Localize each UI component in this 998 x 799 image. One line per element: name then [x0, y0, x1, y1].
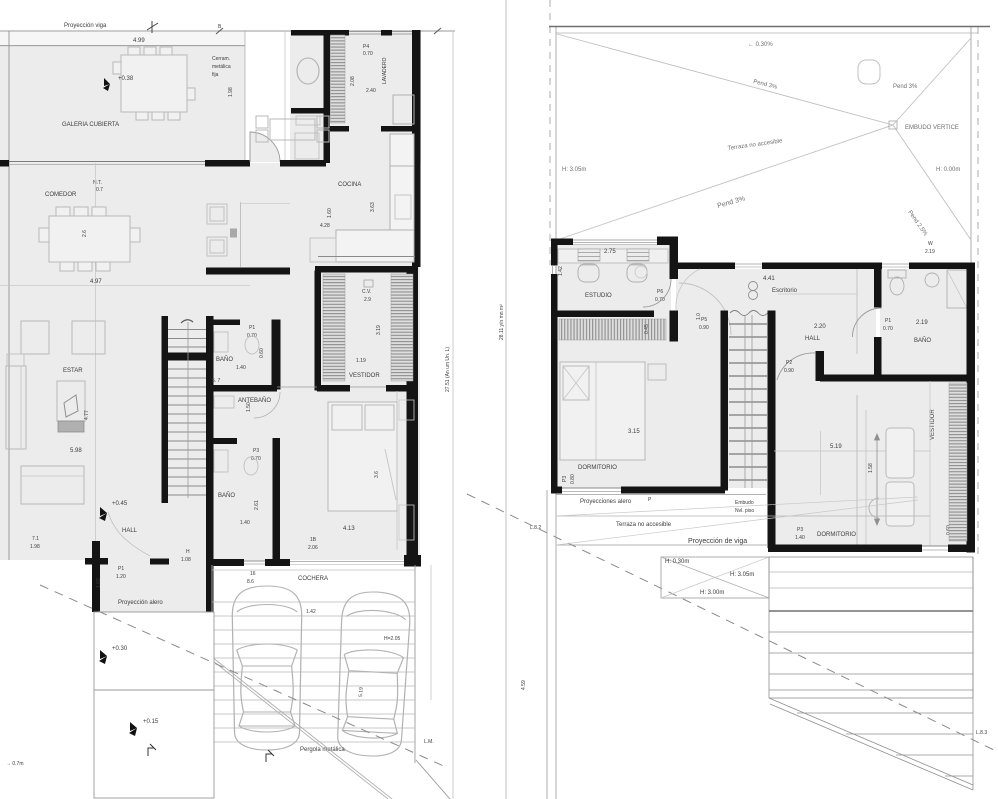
svg-text:1.19: 1.19	[356, 358, 366, 364]
svg-text:7.1: 7.1	[32, 536, 39, 542]
svg-text:4.77: 4.77	[84, 410, 90, 420]
svg-text:W: W	[928, 241, 933, 247]
svg-text:BAÑO: BAÑO	[218, 492, 235, 499]
svg-text:Escritorio: Escritorio	[772, 288, 798, 294]
svg-text:fija: fija	[212, 72, 219, 78]
svg-text:4.97: 4.97	[90, 279, 102, 285]
svg-text:1.98: 1.98	[30, 544, 40, 550]
svg-text:2.40: 2.40	[366, 88, 376, 94]
svg-text:HALL: HALL	[805, 336, 821, 342]
svg-text:+0.38: +0.38	[118, 76, 134, 82]
svg-text:1B: 1B	[310, 537, 317, 543]
svg-text:3.15: 3.15	[628, 429, 640, 435]
svg-text:1.02: 1.02	[96, 578, 102, 588]
svg-text:4.41: 4.41	[763, 276, 775, 282]
svg-text:Terraza no accesible: Terraza no accesible	[616, 522, 672, 528]
svg-text:H: 3.05m: H: 3.05m	[730, 572, 754, 578]
svg-text:H: H	[186, 549, 190, 555]
svg-text:0.80: 0.80	[570, 474, 576, 484]
svg-text:H: 0.00m: H: 0.00m	[936, 167, 960, 173]
svg-text:P1: P1	[249, 325, 255, 331]
svg-text:P3: P3	[797, 527, 803, 533]
svg-text:LAVADERO: LAVADERO	[382, 57, 388, 84]
svg-text:4.28: 4.28	[320, 223, 330, 229]
svg-text:ESTAR: ESTAR	[63, 368, 83, 374]
svg-text:COCINA: COCINA	[338, 182, 361, 188]
svg-text:C.V.: C.V.	[362, 289, 371, 295]
svg-text:Nvl. piso: Nvl. piso	[735, 508, 754, 514]
svg-text:P3: P3	[253, 448, 259, 454]
svg-text:Proyección de viga: Proyección de viga	[688, 538, 747, 545]
svg-text:P3: P3	[562, 476, 568, 482]
svg-text:0.7: 0.7	[96, 187, 103, 193]
svg-text:ANTEBAÑO: ANTEBAÑO	[238, 397, 271, 404]
svg-text:P1: P1	[118, 566, 124, 572]
svg-text:P4: P4	[363, 44, 369, 50]
svg-text:1.60: 1.60	[327, 208, 333, 218]
svg-text:N.T.: N.T.	[93, 180, 102, 186]
svg-text:3.63: 3.63	[370, 202, 376, 212]
svg-text:0.70: 0.70	[363, 51, 373, 57]
svg-text:+0.30: +0.30	[112, 646, 128, 652]
svg-text:0.90: 0.90	[784, 368, 794, 374]
svg-text:1.08: 1.08	[181, 557, 191, 563]
svg-text:+0.15: +0.15	[143, 719, 159, 725]
svg-text:3.6: 3.6	[374, 471, 380, 478]
svg-text:16: 16	[250, 571, 256, 577]
svg-text:2.06: 2.06	[308, 545, 318, 551]
svg-text:1.50: 1.50	[246, 402, 252, 412]
svg-text:ESTUDIO: ESTUDIO	[585, 293, 612, 299]
svg-text:H=2.05: H=2.05	[384, 636, 400, 642]
svg-text:8.6: 8.6	[247, 579, 254, 585]
svg-text:2.19: 2.19	[925, 249, 935, 255]
svg-text:Cerram.: Cerram.	[212, 56, 230, 62]
svg-text:5.98: 5.98	[70, 448, 82, 454]
svg-text:4.99: 4.99	[133, 38, 145, 44]
svg-text:VESTIDOR: VESTIDOR	[349, 373, 380, 379]
svg-text:2.75: 2.75	[604, 249, 616, 255]
svg-text:1.98: 1.98	[228, 87, 234, 97]
svg-text:3.19: 3.19	[376, 325, 382, 335]
svg-text:1.40: 1.40	[236, 365, 246, 371]
svg-text:1.42: 1.42	[558, 266, 564, 276]
svg-text:5. 7: 5. 7	[212, 378, 221, 384]
svg-text:L.8.3: L.8.3	[976, 730, 987, 736]
svg-text:Pend 3%: Pend 3%	[893, 84, 918, 90]
svg-text:2.6: 2.6	[82, 230, 88, 237]
svg-text:5.19: 5.19	[830, 444, 842, 450]
svg-text:2.20: 2.20	[814, 324, 826, 330]
svg-text:0.90: 0.90	[699, 325, 709, 331]
svg-text:0.45: 0.45	[644, 324, 650, 334]
svg-text:P2: P2	[786, 360, 792, 366]
svg-text:2.61: 2.61	[254, 500, 260, 510]
svg-text:1.58: 1.58	[868, 463, 874, 473]
svg-text:Proyecciones alero: Proyecciones alero	[580, 499, 632, 505]
svg-text:L.M.: L.M.	[424, 739, 434, 745]
svg-text:Embudo: Embudo	[735, 500, 754, 506]
svg-text:Proyección alero: Proyección alero	[118, 600, 163, 606]
svg-text:1.40: 1.40	[240, 520, 250, 526]
svg-text:2.19: 2.19	[916, 320, 928, 326]
svg-text:BAÑO: BAÑO	[914, 337, 931, 344]
svg-text:+0.45: +0.45	[112, 501, 128, 507]
svg-text:4.13: 4.13	[343, 526, 355, 532]
svg-text:→ 0.7m: → 0.7m	[6, 761, 24, 767]
svg-text:DORMITORIO: DORMITORIO	[817, 532, 856, 538]
svg-text:metálica: metálica	[212, 64, 231, 70]
svg-text:GALERIA CUBIERTA: GALERIA CUBIERTA	[62, 122, 119, 128]
svg-text:27.51 (An um Un. L): 27.51 (An um Un. L)	[445, 347, 451, 392]
svg-text:1.40: 1.40	[795, 535, 805, 541]
svg-text:2.9: 2.9	[364, 297, 371, 303]
svg-text:28.11 y/n mn m²: 28.11 y/n mn m²	[499, 304, 505, 340]
svg-text:← 0.30%: ← 0.30%	[748, 42, 773, 48]
svg-text:P5: P5	[701, 317, 707, 323]
svg-text:2.08: 2.08	[350, 76, 356, 86]
svg-text:0.70: 0.70	[883, 326, 893, 332]
svg-text:EMBUDO VERTICE: EMBUDO VERTICE	[905, 125, 959, 131]
svg-text:P6: P6	[657, 289, 663, 295]
svg-text:H: 3.05m: H: 3.05m	[562, 167, 586, 173]
svg-text:1.20: 1.20	[116, 574, 126, 580]
svg-text:BAÑO: BAÑO	[216, 356, 233, 363]
svg-text:COCHERA: COCHERA	[298, 576, 328, 582]
svg-text:0.60: 0.60	[259, 348, 265, 358]
svg-text:COMEDOR: COMEDOR	[45, 192, 77, 198]
svg-text:VESTIDOR: VESTIDOR	[930, 409, 936, 440]
svg-text:H: 0.30m: H: 0.30m	[665, 559, 689, 565]
svg-text:1.42: 1.42	[306, 609, 316, 615]
svg-text:HALL: HALL	[122, 528, 138, 534]
svg-text:4.59: 4.59	[521, 680, 527, 690]
svg-text:P1: P1	[885, 318, 891, 324]
svg-text:5.19: 5.19	[358, 687, 365, 697]
svg-text:Proyección viga: Proyección viga	[64, 23, 107, 29]
svg-text:DORMITORIO: DORMITORIO	[578, 465, 617, 471]
svg-text:H: 3.00m: H: 3.00m	[700, 590, 724, 596]
